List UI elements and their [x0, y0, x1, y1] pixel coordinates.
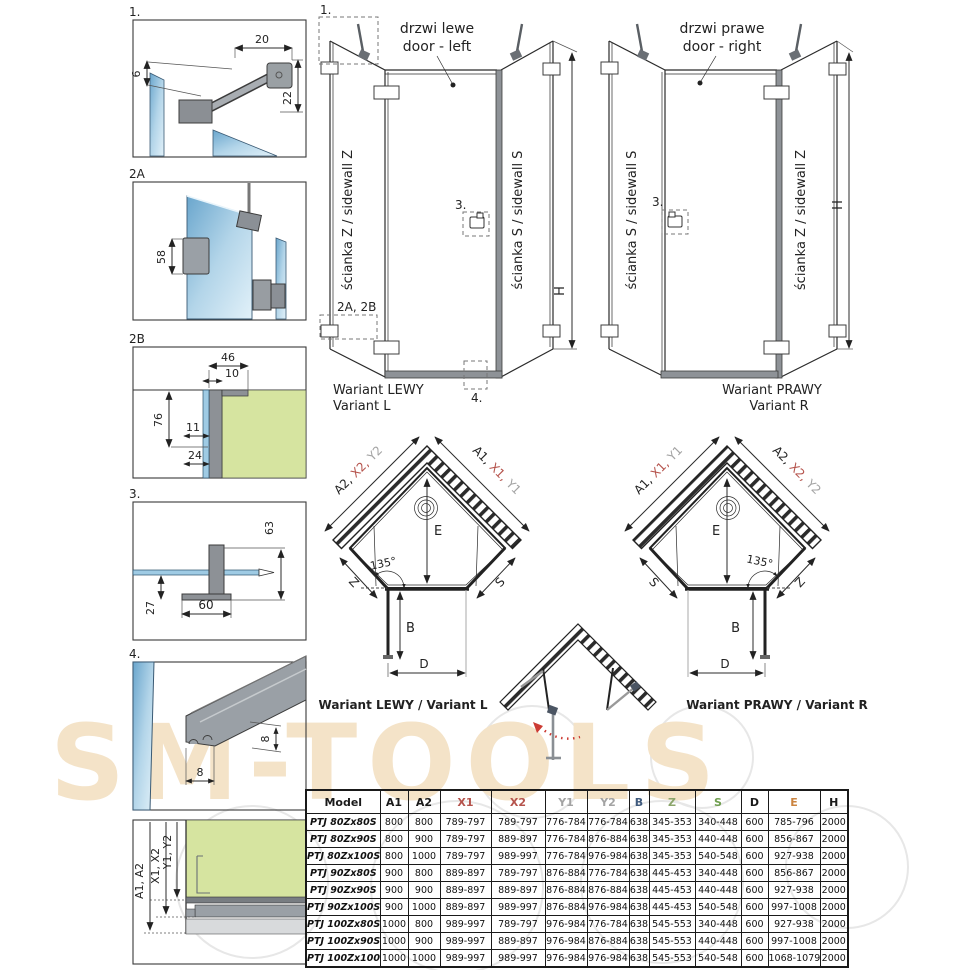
door-label-en: door - left [403, 39, 472, 55]
value-cell: 545-553 [649, 916, 695, 933]
table-row: PTJ 100Zx90S1000900989-997889-897976-984… [306, 933, 848, 950]
door-hinge-profile [776, 70, 782, 378]
value-cell: 345-353 [649, 848, 695, 865]
callout-3: 3. [455, 198, 466, 212]
callout-4: 4. [471, 391, 482, 405]
value-cell: 345-353 [649, 831, 695, 848]
value-cell: 600 [741, 950, 768, 968]
topview-right: E A1,X1,Y1 A2,X2,Y2 S Z 135° B D Wariant… [625, 437, 868, 712]
table-row: PTJ 90Zx100S9001000889-897989-997876-884… [306, 899, 848, 916]
topview-right-caption: Wariant PRAWY / Variant R [686, 698, 868, 712]
angle-label: 135° [369, 554, 398, 572]
door-hinge [764, 86, 789, 99]
caption-line2: Variant L [333, 399, 391, 414]
caption-line2: Variant R [749, 399, 808, 414]
value-cell: 445-453 [649, 882, 695, 899]
value-cell: 900 [380, 882, 408, 899]
value-cell: 876-884 [545, 865, 587, 882]
dim-58: 58 [155, 250, 168, 264]
value-cell: 600 [741, 814, 768, 831]
value-cell: 638 [629, 950, 649, 968]
value-cell: 600 [741, 848, 768, 865]
dim-11: 11 [186, 421, 200, 434]
topview-left: E A2,X2,Y2 A1,X1,Y1 Z S 135° B D Wariant… [319, 437, 529, 712]
detail-4-label: 4. [129, 647, 140, 661]
value-cell: 540-548 [695, 899, 741, 916]
dim-46: 46 [221, 351, 235, 364]
value-cell: 976-984 [587, 899, 629, 916]
column-header-a1: A1 [380, 790, 408, 814]
bottom-rail [385, 371, 502, 378]
value-cell: 789-797 [440, 831, 491, 848]
sidewall-z-label: ścianka Z / sidewall Z [794, 150, 809, 290]
knob-profile [209, 545, 224, 594]
value-cell: 976-984 [545, 950, 587, 968]
value-cell: 776-784 [587, 865, 629, 882]
table-row: PTJ 80Zx100S8001000789-797989-997776-784… [306, 848, 848, 865]
bottom-rail [661, 371, 778, 378]
value-cell: 997-1008 [768, 899, 820, 916]
detail-2b: 2B 46 10 76 11 24 [129, 332, 306, 478]
door-hinge [764, 341, 789, 354]
wall-bracket [183, 238, 209, 274]
value-cell: 2000 [820, 950, 848, 968]
callout-3: 3. [652, 195, 663, 209]
dim-6: 6 [130, 71, 143, 78]
value-cell: 989-997 [491, 848, 545, 865]
value-cell: 1000 [380, 950, 408, 968]
elevation-right: drzwi prawe door - right ścianka S / sid… [601, 21, 853, 414]
detail-1: 1. 20 6 22 [129, 5, 306, 157]
value-cell: 789-797 [491, 865, 545, 882]
dim-s: S [646, 575, 661, 590]
dim-76: 76 [152, 413, 165, 427]
caption-line1: Wariant LEWY [333, 383, 424, 398]
column-header-model: Model [306, 790, 380, 814]
column-header-a2: A2 [408, 790, 440, 814]
value-cell: 876-884 [545, 899, 587, 916]
table-row: PTJ 100Zx100S10001000989-997989-997976-9… [306, 950, 848, 968]
profile-rail [186, 897, 306, 903]
glass-panel [213, 130, 277, 156]
door-label-pl: drzwi lewe [400, 21, 474, 37]
wall-bracket [321, 325, 338, 337]
value-cell: 1000 [380, 933, 408, 950]
value-cell: 2000 [820, 814, 848, 831]
door-hinge [374, 86, 399, 99]
value-cell: 2000 [820, 899, 848, 916]
value-cell: 600 [741, 865, 768, 882]
door-swing-arc [540, 727, 580, 739]
column-header-x2: X2 [491, 790, 545, 814]
value-cell: 856-867 [768, 831, 820, 848]
door-handle [470, 217, 484, 228]
dim-22: 22 [281, 91, 294, 105]
label-x1x2: X1, X2 [149, 848, 162, 884]
model-cell: PTJ 80Zx90S [306, 831, 380, 848]
leader-dot [451, 83, 456, 88]
value-cell: 876-884 [587, 882, 629, 899]
value-cell: 900 [408, 933, 440, 950]
model-cell: PTJ 80Zx100S [306, 848, 380, 865]
dim-60: 60 [198, 598, 213, 612]
column-header-x1: X1 [440, 790, 491, 814]
value-cell: 989-997 [440, 933, 491, 950]
value-cell: 789-797 [440, 848, 491, 865]
value-cell: 927-938 [768, 916, 820, 933]
model-cell: PTJ 80Zx80S [306, 814, 380, 831]
column-header-s: S [695, 790, 741, 814]
value-cell: 800 [380, 831, 408, 848]
dim-z: Z [346, 574, 362, 590]
wall-bracket [543, 325, 560, 337]
value-cell: 600 [741, 899, 768, 916]
detail-4: 4. 8 8 [129, 647, 306, 810]
detail-2b-label: 2B [129, 332, 145, 346]
value-cell: 2000 [820, 831, 848, 848]
value-cell: 889-897 [491, 831, 545, 848]
column-header-e: E [768, 790, 820, 814]
value-cell: 776-784 [545, 814, 587, 831]
value-cell: 440-448 [695, 882, 741, 899]
value-cell: 889-897 [491, 882, 545, 899]
sidewall-s-label: ścianka S / sidewall S [625, 151, 640, 290]
door-hinge [374, 341, 399, 354]
value-cell: 600 [741, 831, 768, 848]
value-cell: 927-938 [768, 848, 820, 865]
wall-bracket [601, 325, 618, 337]
value-cell: 997-1008 [768, 933, 820, 950]
column-header-z: Z [649, 790, 695, 814]
door-handle [668, 216, 682, 227]
value-cell: 600 [741, 916, 768, 933]
value-cell: 638 [629, 814, 649, 831]
sidewall-z-label: ścianka Z / sidewall Z [341, 150, 356, 290]
value-cell: 638 [629, 916, 649, 933]
value-cell: 340-448 [695, 865, 741, 882]
value-cell: 989-997 [491, 950, 545, 968]
value-cell: 440-448 [695, 933, 741, 950]
corner-clamp [179, 100, 212, 123]
detail-3: 3. 63 27 60 [129, 487, 306, 640]
value-cell: 927-938 [768, 882, 820, 899]
door-label-en: door - right [683, 39, 762, 55]
value-cell: 638 [629, 933, 649, 950]
value-cell: 856-867 [768, 865, 820, 882]
dim-20: 20 [255, 33, 269, 46]
wall-bracket [829, 325, 846, 337]
angle-label: 135° [745, 552, 774, 570]
dim-upper-left: A2,X2,Y2 [331, 443, 385, 497]
value-cell: 1000 [380, 916, 408, 933]
wall-section [186, 820, 306, 900]
value-cell: 900 [380, 865, 408, 882]
column-header-b: B [629, 790, 649, 814]
edge-cap [259, 569, 274, 576]
floor-slab [186, 919, 306, 934]
value-cell: 789-797 [440, 814, 491, 831]
value-cell: 440-448 [695, 831, 741, 848]
open-door-sketch [500, 624, 656, 760]
column-header-y1: Y1 [545, 790, 587, 814]
callout-box-1 [319, 17, 378, 64]
door-hinge-profile [496, 70, 502, 378]
detail-2a-label: 2A [129, 167, 146, 181]
table-header-row: ModelA1A2X1X2Y1Y2BZSDEH [306, 790, 848, 814]
value-cell: 800 [408, 916, 440, 933]
value-cell: 889-897 [440, 882, 491, 899]
value-cell: 976-984 [545, 916, 587, 933]
detail-2a: 2A 58 [129, 167, 306, 320]
glass-panel [150, 73, 164, 156]
dim-27: 27 [144, 601, 157, 615]
value-cell: 900 [408, 831, 440, 848]
value-cell: 638 [629, 899, 649, 916]
value-cell: 876-884 [545, 882, 587, 899]
table-row: PTJ 80Zx80S800800789-797789-797776-78477… [306, 814, 848, 831]
profile-section [209, 390, 222, 478]
table-row: PTJ 90Zx90S900900889-897889-897876-88487… [306, 882, 848, 899]
dim-8-bottom: 8 [197, 766, 204, 779]
model-cell: PTJ 100Zx90S [306, 933, 380, 950]
value-cell: 600 [741, 933, 768, 950]
dim-8-right: 8 [259, 736, 272, 743]
value-cell: 989-997 [491, 899, 545, 916]
model-cell: PTJ 100Zx80S [306, 916, 380, 933]
value-cell: 785-796 [768, 814, 820, 831]
value-cell: 2000 [820, 865, 848, 882]
diagram-sheet: SM-TOOLS 1. [0, 0, 970, 970]
value-cell: 889-897 [491, 933, 545, 950]
wall-bracket [543, 63, 560, 75]
value-cell: 800 [380, 814, 408, 831]
dim-b: B [406, 621, 415, 636]
value-cell: 976-984 [545, 933, 587, 950]
seal-profile [186, 656, 306, 746]
column-header-h: H [820, 790, 848, 814]
height-label: H [553, 286, 568, 296]
hinge [253, 280, 271, 310]
value-cell: 540-548 [695, 848, 741, 865]
value-cell: 545-553 [649, 950, 695, 968]
callout-1: 1. [320, 3, 331, 17]
sidewall-s-label: ścianka S / sidewall S [511, 151, 526, 290]
value-cell: 2000 [820, 933, 848, 950]
value-cell: 2000 [820, 916, 848, 933]
value-cell: 876-884 [587, 933, 629, 950]
wall-section [222, 390, 306, 478]
column-header-d: D [741, 790, 768, 814]
value-cell: 800 [408, 865, 440, 882]
value-cell: 340-448 [695, 814, 741, 831]
label-y1y2: Y1, Y2 [161, 835, 174, 870]
topview-left-caption: Wariant LEWY / Variant L [319, 698, 488, 712]
glass-section [203, 390, 209, 478]
detail-3-label: 3. [129, 487, 140, 501]
value-cell: 638 [629, 865, 649, 882]
wall-bracket [601, 62, 618, 74]
glass-panel [133, 662, 154, 810]
model-cell: PTJ 100Zx100S [306, 950, 380, 968]
value-cell: 1068-1079 [768, 950, 820, 968]
dim-z: Z [792, 574, 808, 590]
sidewall-edge [607, 668, 613, 710]
value-cell: 800 [380, 848, 408, 865]
value-cell: 889-897 [440, 865, 491, 882]
dim-upper-right: A2,X2,Y2 [770, 443, 824, 497]
value-cell: 900 [380, 899, 408, 916]
dim-b: B [731, 621, 740, 636]
value-cell: 776-784 [587, 916, 629, 933]
value-cell: 540-548 [695, 950, 741, 968]
dim-upper-left: A1,X1,Y1 [631, 443, 685, 497]
dim-d: D [419, 657, 428, 671]
value-cell: 638 [629, 848, 649, 865]
value-cell: 976-984 [587, 848, 629, 865]
value-cell: 2000 [820, 882, 848, 899]
value-cell: 876-884 [587, 831, 629, 848]
value-cell: 445-453 [649, 865, 695, 882]
height-label: H [831, 200, 846, 210]
value-cell: 638 [629, 831, 649, 848]
detail-1-label: 1. [129, 5, 140, 19]
value-cell: 345-353 [649, 814, 695, 831]
value-cell: 340-448 [695, 916, 741, 933]
table-row: PTJ 80Zx90S800900789-797889-897776-78487… [306, 831, 848, 848]
dim-e: E [434, 524, 442, 539]
wall-bracket [829, 63, 846, 75]
value-cell: 1000 [408, 950, 440, 968]
value-cell: 776-784 [545, 848, 587, 865]
table-row: PTJ 90Zx80S900800889-897789-797876-88477… [306, 865, 848, 882]
dim-63: 63 [263, 521, 276, 535]
value-cell: 776-784 [587, 814, 629, 831]
value-cell: 1000 [408, 899, 440, 916]
door-label-pl: drzwi prawe [679, 21, 764, 37]
value-cell: 638 [629, 882, 649, 899]
value-cell: 1000 [408, 848, 440, 865]
leader-dot [698, 81, 703, 86]
value-cell: 989-997 [440, 916, 491, 933]
value-cell: 2000 [820, 848, 848, 865]
elevation-left: 1. drzwi lewe door - left ścianka Z / si… [319, 3, 577, 414]
value-cell: 900 [408, 882, 440, 899]
detail-floor-section: Y1, Y2 X1, X2 A1, A2 [133, 820, 306, 964]
value-cell: 445-453 [649, 899, 695, 916]
value-cell: 976-984 [587, 950, 629, 968]
value-cell: 545-553 [649, 933, 695, 950]
value-cell: 989-997 [440, 950, 491, 968]
label-a1a2: A1, A2 [133, 863, 146, 899]
dim-24: 24 [188, 449, 202, 462]
dim-10: 10 [225, 367, 239, 380]
value-cell: 600 [741, 882, 768, 899]
value-cell: 789-797 [491, 814, 545, 831]
wall-band [500, 624, 656, 710]
swing-arrowhead [533, 722, 543, 733]
model-cell: PTJ 90Zx90S [306, 882, 380, 899]
dim-d: D [720, 657, 729, 671]
table-row: PTJ 100Zx80S1000800989-997789-797976-984… [306, 916, 848, 933]
dimension-table: ModelA1A2X1X2Y1Y2BZSDEH PTJ 80Zx80S80080… [305, 789, 849, 968]
glass-edge [133, 570, 259, 575]
dim-upper-right: A1,X1,Y1 [470, 443, 524, 497]
dim-e: E [712, 524, 720, 539]
dimension-table-wrap: ModelA1A2X1X2Y1Y2BZSDEH PTJ 80Zx80S80080… [305, 789, 849, 968]
value-cell: 776-784 [545, 831, 587, 848]
dim-s: S [492, 575, 507, 590]
callout-2a2b: 2A, 2B [337, 300, 376, 314]
value-cell: 800 [408, 814, 440, 831]
caption-line1: Wariant PRAWY [722, 383, 822, 398]
value-cell: 789-797 [491, 916, 545, 933]
sidewall-edge [543, 668, 549, 710]
model-cell: PTJ 90Zx80S [306, 865, 380, 882]
wall-mount [267, 63, 292, 88]
column-header-y2: Y2 [587, 790, 629, 814]
model-cell: PTJ 90Zx100S [306, 899, 380, 916]
value-cell: 889-897 [440, 899, 491, 916]
